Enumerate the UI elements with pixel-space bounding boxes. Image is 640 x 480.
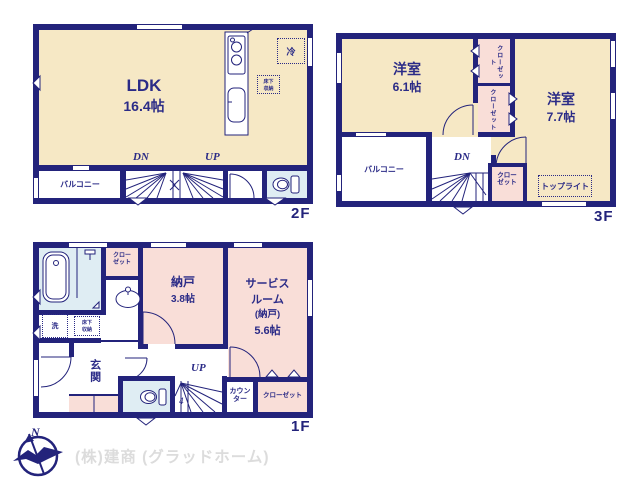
wall — [426, 132, 432, 201]
counter-dotted-line — [267, 167, 307, 169]
opening-marker — [265, 198, 285, 205]
window — [234, 242, 262, 248]
window — [610, 93, 616, 119]
wall — [478, 83, 510, 86]
room-closet1-3f: クローゼット — [478, 39, 510, 83]
skylight-area: トップライト — [538, 175, 592, 197]
laundry-label: 洗 — [52, 321, 59, 331]
company-name: (株)建商 (グラッドホーム) — [75, 445, 270, 467]
floor-label-1f: 1F — [291, 418, 311, 435]
entrance-label: 玄関 — [88, 350, 101, 392]
washbasin-icon — [116, 287, 140, 308]
stairs-up-label-2f: UP — [205, 151, 220, 163]
room-size-service: 5.6帖 — [228, 325, 307, 338]
stair-direction-marker — [454, 207, 472, 214]
staircase-2f — [126, 171, 223, 198]
counter-label: カウンター — [228, 388, 252, 404]
wall — [222, 376, 227, 412]
room-closet2-1f: クローゼット — [258, 382, 307, 412]
stairs-down-label-3f: DN — [454, 151, 470, 163]
wall — [143, 344, 148, 349]
balcony-label-3f: バルコニー — [350, 165, 418, 174]
floor-plan-3f: クローゼット クローゼット クローゼット トップライト 洋室 6.1帖 洋室 7… — [336, 33, 616, 207]
window — [610, 41, 616, 67]
window — [33, 178, 39, 198]
window — [336, 53, 342, 83]
window — [69, 242, 107, 248]
closet-label: クローゼット — [258, 392, 307, 399]
opening-marker — [137, 418, 155, 425]
floor-plan-2f: 冷 床下収納 LDK 16.4帖 バルコニー DN UP — [33, 24, 313, 204]
closet-label: クローゼット — [496, 172, 518, 187]
wall — [253, 377, 258, 412]
window — [307, 280, 313, 316]
stairs-1f: 4 — [175, 381, 222, 412]
partition-line — [101, 340, 143, 342]
floor-label-3f: 3F — [594, 208, 614, 225]
compass-bird-shape — [13, 447, 63, 464]
room-name-service-3: (納戸) — [228, 310, 307, 321]
wall — [478, 132, 515, 137]
wall — [69, 343, 74, 357]
wall — [118, 376, 175, 381]
room-size-77: 7.7帖 — [520, 111, 602, 125]
compass-icon: N — [8, 424, 68, 480]
room-name-ldk: LDK — [84, 76, 204, 96]
wall — [175, 344, 228, 349]
entrance-opening — [33, 360, 39, 396]
floor-label-2f: 2F — [291, 205, 311, 222]
window — [307, 38, 313, 66]
floor-plan-1f: クローゼット クローゼット 洗 床下収納 納戸 3.8帖 サービス ルーム — [33, 242, 313, 418]
hallway-2f — [228, 171, 262, 198]
room-name-61: 洋室 — [367, 61, 447, 77]
staircase-3f — [432, 137, 491, 201]
room-toilet-1f — [123, 381, 170, 412]
room-toilet-2f — [267, 171, 307, 198]
north-arrowhead — [24, 434, 34, 443]
skylight-label: トップライト — [541, 181, 589, 192]
laundry-space: 洗 — [42, 314, 68, 338]
closet-label: クローゼット — [111, 253, 133, 267]
wall — [170, 376, 175, 412]
refrigerator-space: 冷 — [277, 38, 305, 64]
wall — [118, 376, 123, 412]
stairs-up-label-1f: UP — [191, 362, 206, 374]
wall — [223, 377, 307, 382]
room-closet3-3f: クローゼット — [488, 163, 527, 201]
under-floor-storage-2f: 床下収納 — [257, 75, 280, 94]
wall — [101, 248, 106, 315]
entrance-step — [69, 394, 118, 412]
window — [137, 24, 182, 30]
wall — [120, 171, 126, 198]
window — [73, 165, 89, 171]
stair-direction-marker — [129, 198, 147, 205]
room-closet2-3f: クローゼット — [478, 86, 510, 132]
window — [542, 201, 586, 207]
under-floor-storage-label: 床下収納 — [82, 319, 93, 333]
wall — [262, 171, 267, 198]
stair-count: 4 — [179, 396, 184, 406]
closet-label: クローゼット — [488, 42, 502, 82]
room-size-ldk: 16.4帖 — [84, 98, 204, 114]
wall — [473, 39, 478, 103]
entrance-door-arc — [41, 357, 71, 387]
wall — [223, 171, 228, 198]
stairs-down-label-2f: DN — [133, 151, 149, 163]
balcony-label-2f: バルコニー — [47, 180, 113, 189]
compass-north-label: N — [30, 425, 41, 439]
fridge-label: 冷 — [286, 45, 295, 58]
under-floor-storage-1f: 床下収納 — [74, 316, 100, 336]
room-name-77: 洋室 — [520, 91, 602, 107]
floor-plan-page: 冷 床下収納 LDK 16.4帖 バルコニー DN UP — [0, 0, 640, 480]
room-name-storage: 納戸 — [143, 276, 223, 290]
window — [151, 242, 186, 248]
room-size-61: 6.1帖 — [367, 81, 447, 95]
room-name-service-1: サービス — [228, 278, 307, 291]
room-bathroom — [39, 248, 101, 310]
window — [336, 175, 342, 191]
closet-label: クローゼット — [488, 89, 495, 131]
window — [356, 132, 386, 137]
room-closet1-1f: クローゼット — [106, 248, 138, 276]
room-size-storage: 3.8帖 — [143, 294, 223, 306]
under-floor-storage-label: 床下収納 — [263, 78, 274, 92]
wall — [106, 276, 138, 280]
room-name-service-2: ルーム — [228, 294, 307, 307]
wall — [510, 39, 515, 137]
